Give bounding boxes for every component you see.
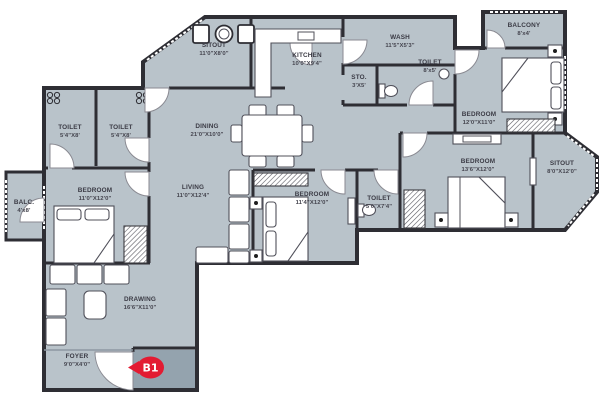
sliding-door-panel: [530, 158, 536, 185]
room-label-dining: DINING: [195, 123, 218, 130]
room-label-sitout-right: SITOUT: [550, 160, 574, 167]
room-dims-living: 11'0"X12'4": [177, 193, 210, 199]
room-dims-balc-left: 4'x8': [17, 208, 31, 214]
room-dims-dining: 21'0"X10'0": [190, 132, 223, 138]
floor-plan-canvas: SITOUT 11'0"X8'0" KITCHEN 10'0"X9'4" WAS…: [0, 0, 600, 400]
room-dims-wash: 11'5"X5'3": [385, 43, 414, 49]
room-dims-sitout-right: 8'0"X12'0": [547, 169, 577, 175]
room-dims-kitchen: 10'0"X9'4": [292, 61, 322, 67]
unit-badge-label: B1: [142, 362, 158, 375]
floor-plan-svg: SITOUT 11'0"X8'0" KITCHEN 10'0"X9'4" WAS…: [0, 0, 600, 400]
room-label-wash: WASH: [390, 34, 410, 41]
sitout-top-appliances: [193, 25, 254, 43]
room-dims-bedroom-left: 11'0"X12'0": [79, 196, 112, 202]
room-dims-bedroom-mid: 11'4"X12'0": [296, 200, 329, 206]
room-dims-toilet-left-1: 5'4"X8': [60, 133, 81, 139]
room-dims-sitout-top: 11'0"X8'0": [199, 51, 228, 57]
room-label-balc-left: BALC.: [14, 199, 34, 206]
room-label-balcony-top-right: BALCONY: [508, 22, 541, 29]
room-dims-toilet-left-2: 5'4"X8': [111, 133, 132, 139]
room-dims-bedroom-right: 13'6"X12'0": [461, 167, 494, 173]
room-dims-balcony-top-right: 8'x4': [517, 31, 531, 37]
room-label-bedroom-top-right: BEDROOM: [462, 111, 496, 118]
room-dims-toilet-top: 8'x5': [423, 68, 437, 74]
room-label-living: LIVING: [182, 184, 204, 191]
room-dims-drawing: 16'6"X11'0": [124, 305, 157, 311]
room-label-bedroom-left: BEDROOM: [78, 187, 112, 194]
room-label-foyer: FOYER: [66, 353, 89, 360]
bedroom-left-bed: [54, 206, 114, 263]
door-panel-bedroom-mid: [348, 198, 355, 224]
bedroom-top-right-furniture: [502, 45, 564, 132]
room-label-toilet-top: TOILET: [418, 59, 442, 66]
room-label-toilet-left-1: TOILET: [58, 124, 82, 131]
room-dims-toilet-mid: 5'0"X7'4": [366, 204, 392, 210]
room-label-bedroom-mid: BEDROOM: [295, 191, 329, 198]
room-label-toilet-mid: TOILET: [367, 195, 391, 202]
bedroom-left-wardrobe: [124, 226, 147, 263]
room-label-sto: STO.: [351, 74, 366, 81]
room-label-drawing: DRAWING: [124, 296, 156, 303]
room-dims-bedroom-top-right: 12'0"X11'0": [463, 120, 496, 126]
room-dims-sto: 3'X5': [352, 83, 366, 89]
room-dims-foyer: 9'0"X4'0": [64, 362, 90, 368]
room-label-sitout-top: SITOUT: [202, 42, 226, 49]
room-label-bedroom-right: BEDROOM: [461, 158, 495, 165]
room-label-kitchen: KITCHEN: [292, 52, 322, 59]
room-label-toilet-left-2: TOILET: [109, 124, 133, 131]
